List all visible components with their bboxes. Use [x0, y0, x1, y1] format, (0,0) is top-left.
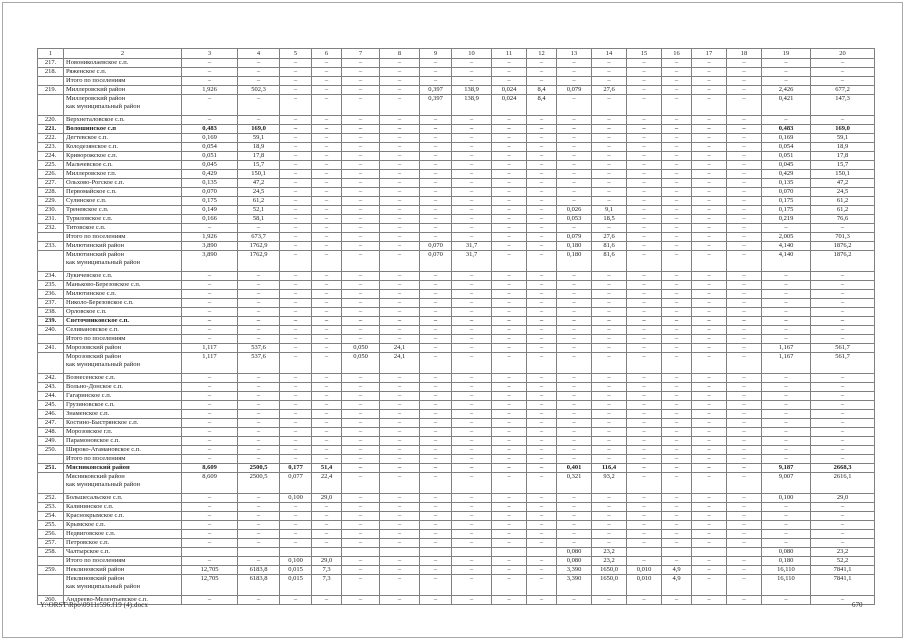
value-cell: – — [692, 95, 727, 116]
value-cell: – — [420, 170, 452, 179]
settlement-name-cell: Калининское с.п. — [64, 503, 182, 512]
value-cell: – — [662, 410, 692, 419]
value-cell: 52,1 — [238, 206, 280, 215]
value-cell: – — [182, 272, 238, 281]
value-cell: – — [312, 455, 342, 464]
value-cell — [342, 548, 380, 557]
value-cell: – — [452, 503, 492, 512]
value-cell: – — [280, 419, 312, 428]
value-cell: – — [452, 143, 492, 152]
value-cell: – — [420, 455, 452, 464]
column-number: 13 — [557, 49, 592, 59]
value-cell: – — [727, 392, 762, 401]
value-cell: – — [420, 116, 452, 125]
value-cell: 2668,3 — [811, 464, 875, 473]
value-cell: – — [592, 170, 627, 179]
value-cell: – — [342, 383, 380, 392]
value-cell: – — [452, 233, 492, 242]
value-cell: – — [238, 419, 280, 428]
value-cell: – — [527, 326, 557, 335]
value-cell: – — [627, 317, 662, 326]
value-cell: – — [557, 197, 592, 206]
value-cell: – — [762, 68, 811, 77]
value-cell: 0,169 — [182, 134, 238, 143]
value-cell: – — [727, 188, 762, 197]
value-cell: – — [527, 143, 557, 152]
value-cell: – — [452, 272, 492, 281]
value-cell: – — [420, 344, 452, 353]
column-number: 10 — [452, 49, 492, 59]
value-cell: – — [727, 215, 762, 224]
table-row: 238.Орловское с.п.–––––––––––––––––– — [38, 308, 875, 317]
value-cell: – — [342, 95, 380, 116]
table-row: 246.Знаменское с.п.–––––––––––––––––– — [38, 410, 875, 419]
value-cell: – — [762, 428, 811, 437]
settlement-name-cell: Итого по поселениям — [64, 455, 182, 464]
value-cell: – — [692, 197, 727, 206]
value-cell: – — [238, 116, 280, 125]
value-cell: – — [811, 308, 875, 317]
value-cell: – — [527, 77, 557, 86]
value-cell: – — [420, 512, 452, 521]
value-cell: – — [627, 272, 662, 281]
settlement-name-cell: Орловское с.п. — [64, 308, 182, 317]
value-cell: – — [592, 125, 627, 134]
value-cell: – — [312, 59, 342, 68]
value-cell: – — [492, 503, 527, 512]
value-cell: 23,2 — [811, 548, 875, 557]
value-cell: – — [557, 539, 592, 548]
value-cell: – — [420, 401, 452, 410]
value-cell: – — [727, 446, 762, 455]
value-cell: – — [692, 125, 727, 134]
value-cell: – — [492, 206, 527, 215]
value-cell: 1,117 — [182, 353, 238, 374]
value-cell: – — [380, 233, 420, 242]
value-cell: – — [312, 539, 342, 548]
value-cell: – — [627, 125, 662, 134]
value-cell: – — [380, 206, 420, 215]
settlement-name-cell: Морозовский район — [64, 344, 182, 353]
value-cell: – — [692, 161, 727, 170]
value-cell: – — [312, 95, 342, 116]
value-cell: – — [662, 224, 692, 233]
value-cell: – — [692, 512, 727, 521]
value-cell: – — [182, 503, 238, 512]
value-cell: – — [342, 539, 380, 548]
value-cell: – — [592, 290, 627, 299]
value-cell: – — [592, 152, 627, 161]
value-cell: – — [527, 308, 557, 317]
value-cell: – — [692, 116, 727, 125]
value-cell: – — [182, 494, 238, 503]
value-cell: – — [420, 335, 452, 344]
value-cell: 169,0 — [811, 125, 875, 134]
value-cell: – — [662, 353, 692, 374]
value-cell: – — [662, 242, 692, 251]
value-cell: – — [762, 77, 811, 86]
value-cell: – — [342, 392, 380, 401]
value-cell: – — [527, 437, 557, 446]
value-cell: 12,705 — [182, 575, 238, 596]
value-cell: – — [342, 437, 380, 446]
column-number: 2 — [64, 49, 182, 59]
value-cell: – — [762, 419, 811, 428]
value-cell: – — [280, 215, 312, 224]
row-number-cell — [38, 77, 64, 86]
value-cell: – — [727, 317, 762, 326]
value-cell: – — [662, 251, 692, 272]
value-cell: – — [420, 566, 452, 575]
value-cell: – — [182, 308, 238, 317]
value-cell: 8,609 — [182, 464, 238, 473]
table-row: 251.Мясниковский район8,6092500,50,17751… — [38, 464, 875, 473]
value-cell: – — [492, 68, 527, 77]
value-cell: – — [452, 134, 492, 143]
value-cell: – — [627, 242, 662, 251]
column-number: 11 — [492, 49, 527, 59]
table-row: 230.Треневское с.п.0,14952,1––––––––0,02… — [38, 206, 875, 215]
value-cell: – — [557, 494, 592, 503]
value-cell: – — [592, 335, 627, 344]
value-cell: 0,054 — [762, 143, 811, 152]
table-row: 225.Мальчевское с.п.0,04515,7–––––––––––… — [38, 161, 875, 170]
value-cell: – — [312, 401, 342, 410]
table-row: 217.Новониколаевское с.п.–––––––––––––––… — [38, 59, 875, 68]
table-row: 228.Первомайское с.п.0,07024,5––––––––––… — [38, 188, 875, 197]
value-cell: – — [662, 188, 692, 197]
value-cell: – — [662, 437, 692, 446]
value-cell: 9,1 — [592, 206, 627, 215]
settlement-name-cell: Светочниковское с.п. — [64, 317, 182, 326]
value-cell: – — [527, 521, 557, 530]
value-cell: – — [312, 446, 342, 455]
value-cell: – — [492, 512, 527, 521]
value-cell: – — [662, 197, 692, 206]
value-cell: – — [811, 224, 875, 233]
value-cell: – — [527, 242, 557, 251]
row-number-cell: 256. — [38, 530, 64, 539]
value-cell: – — [182, 392, 238, 401]
settlement-name-cell: Вознесенское с.п. — [64, 374, 182, 383]
value-cell: – — [238, 317, 280, 326]
value-cell: – — [420, 152, 452, 161]
value-cell: – — [627, 116, 662, 125]
value-cell: – — [662, 464, 692, 473]
value-cell: – — [492, 473, 527, 494]
value-cell: – — [452, 455, 492, 464]
settlement-name-cell: Мясниковский районкак муниципальный райо… — [64, 473, 182, 494]
value-cell: – — [592, 401, 627, 410]
value-cell: – — [527, 596, 557, 605]
value-cell: – — [342, 374, 380, 383]
value-cell: – — [342, 215, 380, 224]
value-cell: – — [662, 401, 692, 410]
value-cell: – — [627, 503, 662, 512]
value-cell: – — [692, 143, 727, 152]
value-cell: – — [627, 530, 662, 539]
value-cell: 150,1 — [811, 170, 875, 179]
value-cell: – — [692, 308, 727, 317]
value-cell: – — [420, 464, 452, 473]
value-cell: – — [452, 215, 492, 224]
value-cell: – — [662, 428, 692, 437]
value-cell: 7841,1 — [811, 575, 875, 596]
value-cell: – — [238, 299, 280, 308]
value-cell: – — [692, 557, 727, 566]
value-cell: 0,010 — [627, 575, 662, 596]
column-number: 1 — [38, 49, 64, 59]
table-row: Миллеровский районкак муниципальный райо… — [38, 95, 875, 116]
value-cell: – — [727, 299, 762, 308]
value-cell: – — [312, 188, 342, 197]
row-number-cell: 252. — [38, 494, 64, 503]
value-cell: – — [727, 224, 762, 233]
value-cell: – — [811, 116, 875, 125]
value-cell: – — [312, 419, 342, 428]
value-cell: – — [692, 353, 727, 374]
value-cell: – — [527, 455, 557, 464]
value-cell: – — [557, 353, 592, 374]
value-cell: – — [238, 383, 280, 392]
value-cell: – — [492, 326, 527, 335]
value-cell: – — [527, 557, 557, 566]
value-cell: – — [557, 308, 592, 317]
value-cell: – — [182, 512, 238, 521]
value-cell: – — [727, 566, 762, 575]
value-cell: – — [692, 272, 727, 281]
table-row: 250.Широко-Атамановское с.п.––––––––––––… — [38, 446, 875, 455]
value-cell: – — [727, 134, 762, 143]
value-cell: – — [452, 473, 492, 494]
value-cell: – — [557, 344, 592, 353]
value-cell: – — [662, 95, 692, 116]
value-cell: – — [182, 428, 238, 437]
value-cell: – — [727, 272, 762, 281]
value-cell: – — [527, 59, 557, 68]
value-cell: – — [452, 116, 492, 125]
settlement-name-cell: Верхнеталовское с.п. — [64, 116, 182, 125]
value-cell: – — [527, 473, 557, 494]
value-cell: – — [452, 206, 492, 215]
value-cell: 4,140 — [762, 251, 811, 272]
value-cell: – — [762, 374, 811, 383]
settlement-name-cell: Итого по поселениям — [64, 335, 182, 344]
value-cell: – — [420, 68, 452, 77]
value-cell: – — [420, 353, 452, 374]
value-cell: – — [692, 170, 727, 179]
value-cell: 1876,2 — [811, 242, 875, 251]
table-row: 242.Вознесенское с.п.–––––––––––––––––– — [38, 374, 875, 383]
table-row: Морозовский районкак муниципальный район… — [38, 353, 875, 374]
value-cell: – — [811, 68, 875, 77]
value-cell: – — [280, 455, 312, 464]
value-cell: – — [762, 530, 811, 539]
value-cell: – — [762, 317, 811, 326]
value-cell: 0,169 — [762, 134, 811, 143]
value-cell: – — [727, 77, 762, 86]
settlement-name-cell: Селивановское с.п. — [64, 326, 182, 335]
value-cell: – — [527, 503, 557, 512]
value-cell: – — [727, 503, 762, 512]
value-cell: – — [420, 233, 452, 242]
value-cell: – — [238, 494, 280, 503]
value-cell: – — [312, 206, 342, 215]
value-cell: 1762,9 — [238, 242, 280, 251]
value-cell: – — [280, 353, 312, 374]
value-cell: – — [342, 410, 380, 419]
value-cell: – — [380, 59, 420, 68]
value-cell: – — [692, 251, 727, 272]
value-cell: – — [452, 281, 492, 290]
value-cell: – — [280, 383, 312, 392]
value-cell: – — [452, 392, 492, 401]
value-cell: – — [592, 95, 627, 116]
value-cell: 0,077 — [280, 473, 312, 494]
value-cell: – — [592, 299, 627, 308]
value-cell: – — [452, 464, 492, 473]
value-cell: – — [762, 539, 811, 548]
value-cell: – — [380, 152, 420, 161]
settlement-name-cell: Парамоновское с.п. — [64, 437, 182, 446]
value-cell: – — [692, 86, 727, 95]
value-cell: – — [420, 521, 452, 530]
value-cell: – — [592, 77, 627, 86]
value-cell: 0,175 — [762, 197, 811, 206]
settlement-name-cell: Морозовский районкак муниципальный район — [64, 353, 182, 374]
value-cell: – — [380, 383, 420, 392]
value-cell: – — [182, 410, 238, 419]
row-number-cell: 243. — [38, 383, 64, 392]
value-cell: – — [727, 410, 762, 419]
value-cell: – — [238, 290, 280, 299]
row-number-cell: 219. — [38, 86, 64, 95]
value-cell: – — [420, 326, 452, 335]
value-cell: – — [662, 335, 692, 344]
value-cell: 1,117 — [182, 344, 238, 353]
value-cell: – — [662, 179, 692, 188]
value-cell: – — [312, 281, 342, 290]
value-cell: – — [380, 326, 420, 335]
table-row: 241.Морозовский район1,117537,6––0,05024… — [38, 344, 875, 353]
value-cell: – — [492, 116, 527, 125]
value-cell: – — [380, 335, 420, 344]
value-cell: – — [182, 95, 238, 116]
value-cell: – — [492, 281, 527, 290]
value-cell: – — [380, 116, 420, 125]
settlement-name-cell: Краснокрымское с.п. — [64, 512, 182, 521]
value-cell: – — [811, 335, 875, 344]
value-cell: 0,429 — [762, 170, 811, 179]
table-row: 258.Чалтырское с.п.0,08023,20,08023,2 — [38, 548, 875, 557]
value-cell: 47,2 — [238, 179, 280, 188]
value-cell: – — [492, 401, 527, 410]
value-cell: – — [692, 281, 727, 290]
value-cell: – — [627, 290, 662, 299]
value-cell: 2616,1 — [811, 473, 875, 494]
value-cell: – — [238, 557, 280, 566]
value-cell — [692, 548, 727, 557]
row-number-cell: 254. — [38, 512, 64, 521]
value-cell: – — [627, 455, 662, 464]
value-cell: 16,110 — [762, 566, 811, 575]
value-cell: – — [627, 188, 662, 197]
row-number-cell: 229. — [38, 197, 64, 206]
value-cell: – — [342, 242, 380, 251]
value-cell: – — [238, 530, 280, 539]
column-number: 6 — [312, 49, 342, 59]
value-cell: – — [182, 539, 238, 548]
value-cell: – — [557, 143, 592, 152]
value-cell: – — [662, 308, 692, 317]
value-cell: – — [452, 77, 492, 86]
row-number-cell: 250. — [38, 446, 64, 455]
value-cell: – — [492, 233, 527, 242]
value-cell: – — [280, 272, 312, 281]
row-number-cell: 232. — [38, 224, 64, 233]
value-cell: – — [662, 152, 692, 161]
value-cell: 0,100 — [280, 557, 312, 566]
row-number-cell — [38, 557, 64, 566]
value-cell: 0,135 — [182, 179, 238, 188]
value-cell: – — [627, 170, 662, 179]
settlement-name-cell: Миллеровский районкак муниципальный райо… — [64, 95, 182, 116]
value-cell: – — [527, 116, 557, 125]
value-cell: – — [762, 335, 811, 344]
value-cell: – — [811, 419, 875, 428]
table-row: 221.Волошинское с.п0,483169,0–––––––––––… — [38, 125, 875, 134]
value-cell: – — [452, 566, 492, 575]
value-cell: 0,010 — [627, 566, 662, 575]
value-cell: – — [280, 179, 312, 188]
value-cell: – — [592, 503, 627, 512]
value-cell: – — [238, 272, 280, 281]
value-cell: – — [527, 299, 557, 308]
row-number-cell: 236. — [38, 290, 64, 299]
value-cell: – — [380, 308, 420, 317]
value-cell: – — [342, 512, 380, 521]
column-number: 16 — [662, 49, 692, 59]
value-cell: – — [727, 494, 762, 503]
value-cell: 0,070 — [420, 242, 452, 251]
value-cell: – — [312, 335, 342, 344]
value-cell: – — [182, 224, 238, 233]
value-cell: – — [280, 410, 312, 419]
value-cell: – — [662, 134, 692, 143]
value-cell: – — [452, 344, 492, 353]
value-cell: – — [380, 575, 420, 596]
value-cell: – — [592, 344, 627, 353]
value-cell: 17,8 — [238, 152, 280, 161]
value-cell: – — [342, 575, 380, 596]
value-cell: – — [557, 512, 592, 521]
value-cell: – — [380, 281, 420, 290]
value-cell: – — [557, 161, 592, 170]
value-cell: – — [811, 521, 875, 530]
value-cell: 3,390 — [557, 566, 592, 575]
value-cell: – — [627, 299, 662, 308]
value-cell: 1,167 — [762, 344, 811, 353]
value-cell: – — [380, 596, 420, 605]
value-cell: – — [280, 308, 312, 317]
table-row: 240.Селивановское с.п.–––––––––––––––––– — [38, 326, 875, 335]
value-cell: – — [727, 353, 762, 374]
value-cell: – — [312, 437, 342, 446]
row-number-cell: 224. — [38, 152, 64, 161]
value-cell: – — [420, 473, 452, 494]
value-cell: – — [280, 290, 312, 299]
value-cell: 150,1 — [238, 170, 280, 179]
